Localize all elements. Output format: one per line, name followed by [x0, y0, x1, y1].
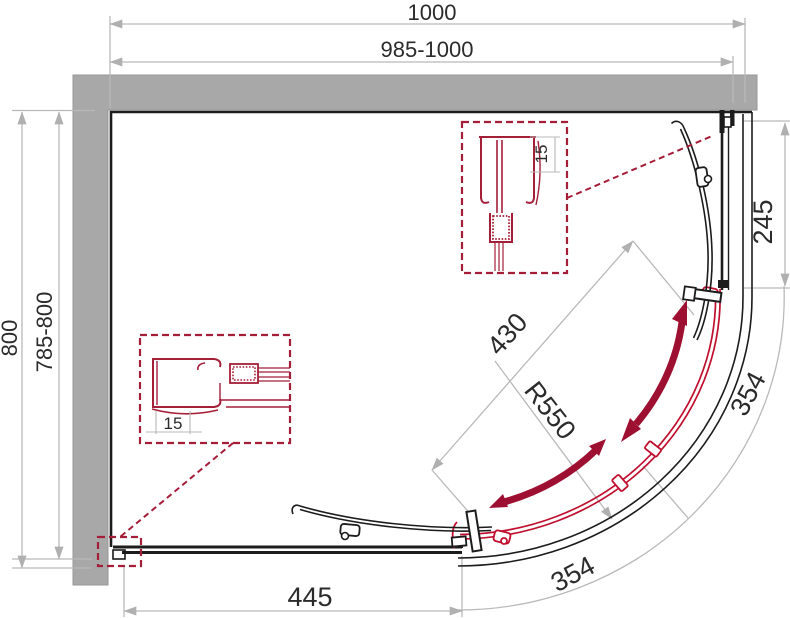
dim-arc-right: 354: [724, 367, 772, 421]
slide-arrow-lower: [489, 439, 606, 508]
profile-section-left: [152, 359, 290, 414]
detail-callout-top: [462, 122, 712, 273]
detail-callout-left: [120, 335, 290, 537]
dim-radius: R550: [518, 376, 581, 445]
callout-leader: [567, 136, 712, 198]
ext-line: [432, 470, 473, 517]
dim-bottom-panel: 445: [287, 582, 332, 612]
walls: [73, 75, 757, 585]
dim-arc-bottom: 354: [546, 550, 600, 598]
callout-box: [462, 122, 567, 273]
wall-top-left: [73, 75, 757, 585]
detail-left-profile-dim: 15: [164, 414, 183, 433]
sliding-door-open-top: [672, 121, 713, 340]
door-edge-hook: [292, 505, 300, 514]
dim-depth-total: 800: [0, 320, 22, 357]
door-roller-clip: [612, 441, 662, 492]
dim-door-width: 430: [481, 307, 533, 361]
fixed-panel-bottom: [113, 542, 463, 559]
technical-drawing-page: 1000 985-1000 800 785-800 245 430 R550 3…: [0, 0, 790, 618]
wall-profile-top-right: [720, 110, 735, 133]
profile-section-top: [479, 137, 540, 271]
dim-right-panel: 245: [748, 199, 778, 244]
callout-leader: [120, 443, 233, 537]
fixed-side-panel-right: [718, 117, 729, 290]
door-edge-hook: [672, 121, 685, 128]
dim-width-total: 1000: [408, 0, 457, 25]
detail-top-profile-dim: 15: [532, 145, 551, 164]
dim-depth-adjustable: 785-800: [32, 292, 57, 373]
dim-width-adjustable: 985-1000: [381, 37, 474, 62]
radius-line: [495, 361, 612, 519]
shower-enclosure-plan-drawing: 1000 985-1000 800 785-800 245 430 R550 3…: [0, 0, 790, 618]
callout-box: [140, 335, 290, 443]
dim-door-width-line: [432, 241, 633, 470]
enclosure-frame: [111, 110, 752, 566]
arc-divider-tick: [643, 466, 688, 518]
